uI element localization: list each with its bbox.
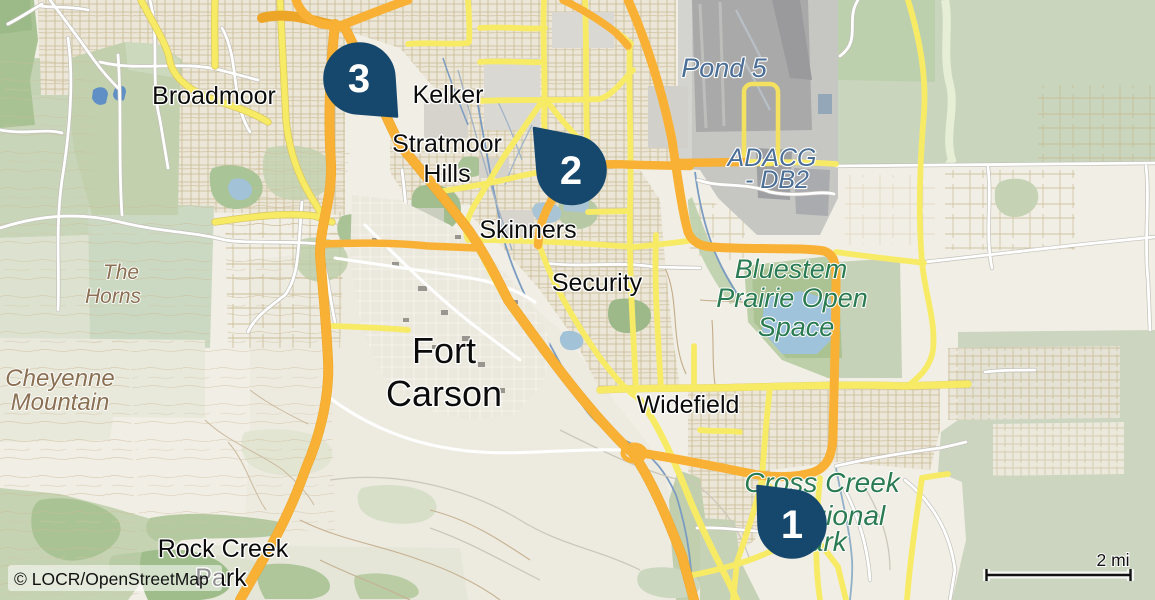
svg-text:Prairie Open: Prairie Open [716,283,868,313]
svg-text:Widefield: Widefield [637,391,740,419]
svg-text:2: 2 [560,149,582,193]
svg-text:3: 3 [348,57,370,101]
svg-text:Skinners: Skinners [479,216,576,244]
svg-text:- DB2: - DB2 [745,166,809,194]
svg-text:Bluestem: Bluestem [735,254,848,284]
svg-text:Cheyenne: Cheyenne [5,365,114,392]
svg-text:Space: Space [758,312,835,342]
svg-text:Security: Security [552,269,643,297]
svg-text:Mountain: Mountain [11,389,110,416]
svg-text:The: The [103,261,139,284]
svg-text:Kelker: Kelker [413,81,484,109]
svg-text:Pond 5: Pond 5 [681,53,768,83]
svg-text:Hills: Hills [423,160,470,188]
svg-text:© LOCR/OpenStreetMap: © LOCR/OpenStreetMap [14,569,209,589]
svg-text:Carson: Carson [386,373,502,414]
svg-text:1: 1 [781,503,803,547]
svg-text:Horns: Horns [85,285,142,308]
svg-text:Stratmoor: Stratmoor [392,130,502,158]
svg-text:Broadmoor: Broadmoor [152,82,276,110]
svg-text:Fort: Fort [412,330,476,371]
svg-text:Rock Creek: Rock Creek [158,535,289,563]
svg-text:2 mi: 2 mi [1096,550,1129,570]
